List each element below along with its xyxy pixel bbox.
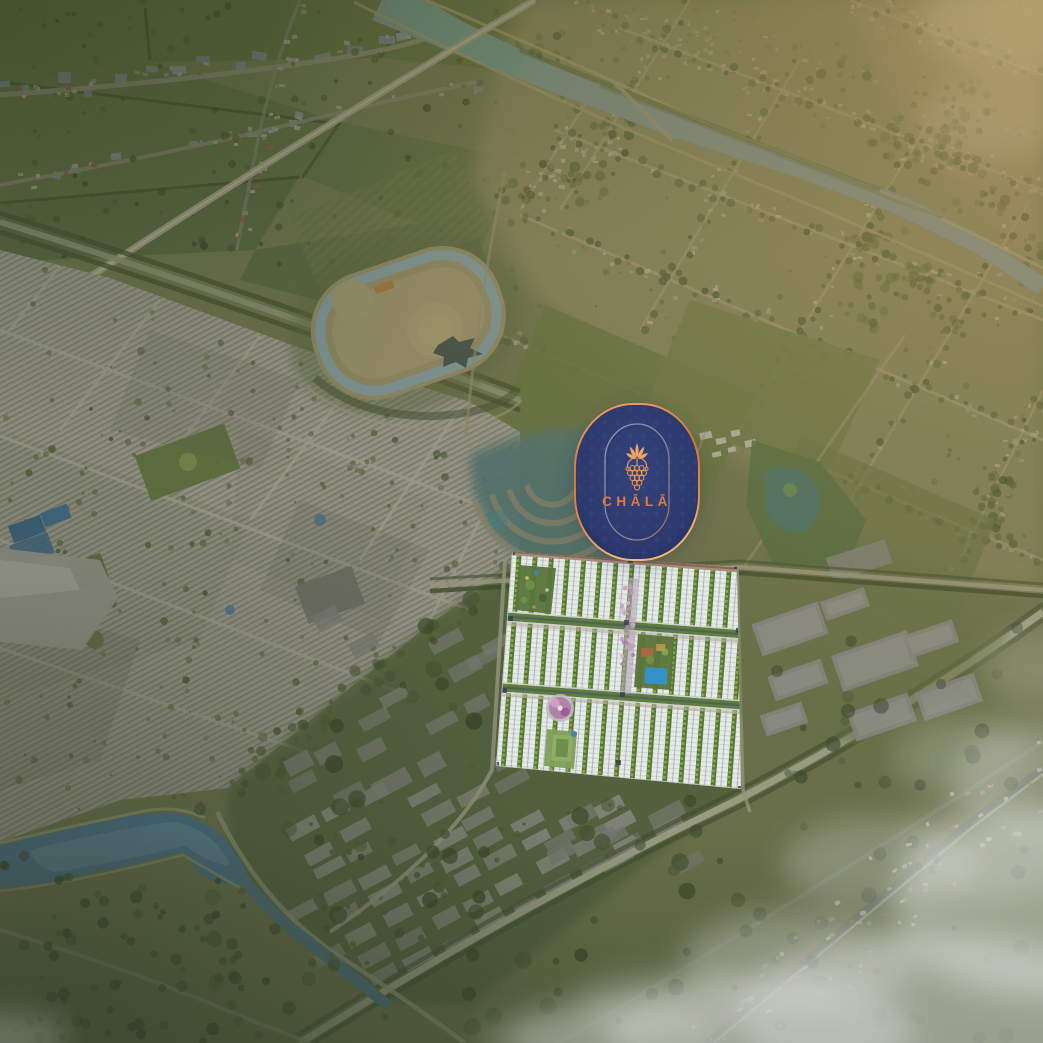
svg-text:CHĀLĀ: CHĀLĀ — [602, 494, 672, 509]
